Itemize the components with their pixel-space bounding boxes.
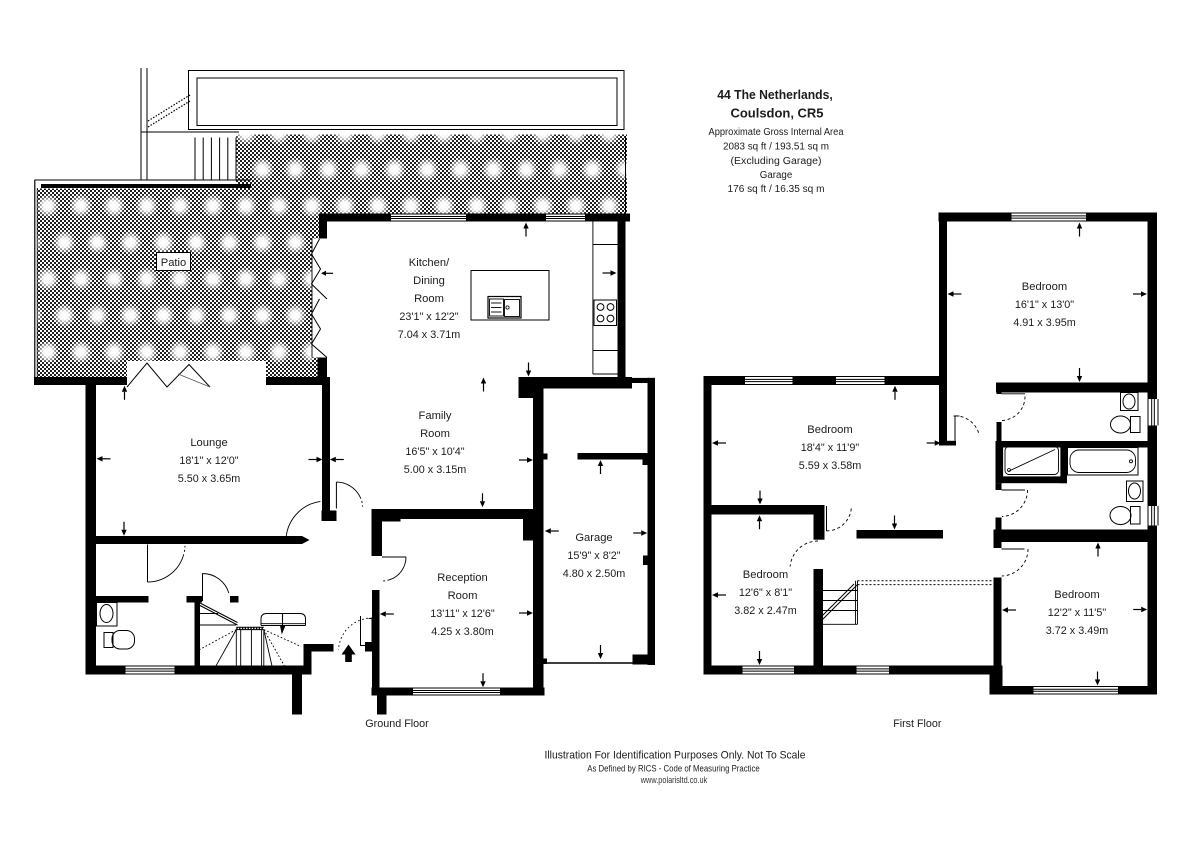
svg-text:18'1" x 12'0": 18'1" x 12'0" [179,455,238,467]
svg-text:Coulsdon, CR5: Coulsdon, CR5 [731,107,824,121]
svg-text:First Floor: First Floor [893,718,942,730]
svg-text:Kitchen/: Kitchen/ [409,257,450,269]
svg-text:3.72 x 3.49m: 3.72 x 3.49m [1046,625,1108,637]
svg-text:176 sq ft / 16.35 sq m: 176 sq ft / 16.35 sq m [728,184,825,195]
svg-text:4.25 x 3.80m: 4.25 x 3.80m [431,626,493,638]
svg-text:Ground Floor: Ground Floor [365,718,429,730]
svg-text:Garage: Garage [575,532,612,544]
svg-text:13'11" x 12'6": 13'11" x 12'6" [430,608,495,620]
svg-text:5.50 x 3.65m: 5.50 x 3.65m [178,473,240,485]
svg-text:4.91 x 3.95m: 4.91 x 3.95m [1013,317,1075,329]
svg-text:Family: Family [419,410,452,422]
svg-text:16'1" x 13'0": 16'1" x 13'0" [1015,299,1074,311]
svg-text:www.polarisltd.co.uk: www.polarisltd.co.uk [640,775,708,785]
svg-text:4.80 x 2.50m: 4.80 x 2.50m [563,568,625,580]
svg-text:44 The Netherlands,: 44 The Netherlands, [717,88,833,102]
svg-text:Dining: Dining [413,275,445,287]
svg-text:Room: Room [420,428,450,440]
svg-text:5.00 x 3.15m: 5.00 x 3.15m [404,464,466,476]
svg-text:(Excluding Garage): (Excluding Garage) [731,156,822,167]
svg-text:Approximate Gross Internal Are: Approximate Gross Internal Area [709,127,845,138]
svg-text:12'2" x 11'5": 12'2" x 11'5" [1048,607,1107,619]
svg-text:Reception: Reception [437,572,487,584]
svg-text:Bedroom: Bedroom [1054,589,1099,601]
svg-text:Room: Room [448,590,478,602]
svg-text:12'6" x 8'1": 12'6" x 8'1" [739,587,792,599]
svg-text:Patio: Patio [161,257,187,269]
svg-text:15'9" x 8'2": 15'9" x 8'2" [567,550,620,562]
svg-text:2083 sq ft / 193.51 sq m: 2083 sq ft / 193.51 sq m [723,142,829,153]
svg-text:As Defined by RICS - Code of M: As Defined by RICS - Code of Measuring P… [587,764,760,775]
svg-text:Lounge: Lounge [190,437,227,449]
svg-text:Bedroom: Bedroom [743,569,788,581]
svg-text:3.82 x 2.47m: 3.82 x 2.47m [734,605,796,617]
svg-text:Bedroom: Bedroom [1022,281,1067,293]
svg-text:Bedroom: Bedroom [807,424,852,436]
svg-text:Room: Room [414,293,444,305]
svg-text:16'5" x 10'4": 16'5" x 10'4" [405,446,464,458]
svg-text:23'1" x 12'2": 23'1" x 12'2" [399,311,458,323]
svg-text:Garage: Garage [760,170,793,181]
svg-text:Illustration For Identificatio: Illustration For Identification Purposes… [545,750,806,762]
svg-text:7.04 x 3.71m: 7.04 x 3.71m [398,329,460,341]
svg-text:18'4" x 11'9": 18'4" x 11'9" [801,442,860,454]
svg-text:5.59 x 3.58m: 5.59 x 3.58m [799,460,861,472]
